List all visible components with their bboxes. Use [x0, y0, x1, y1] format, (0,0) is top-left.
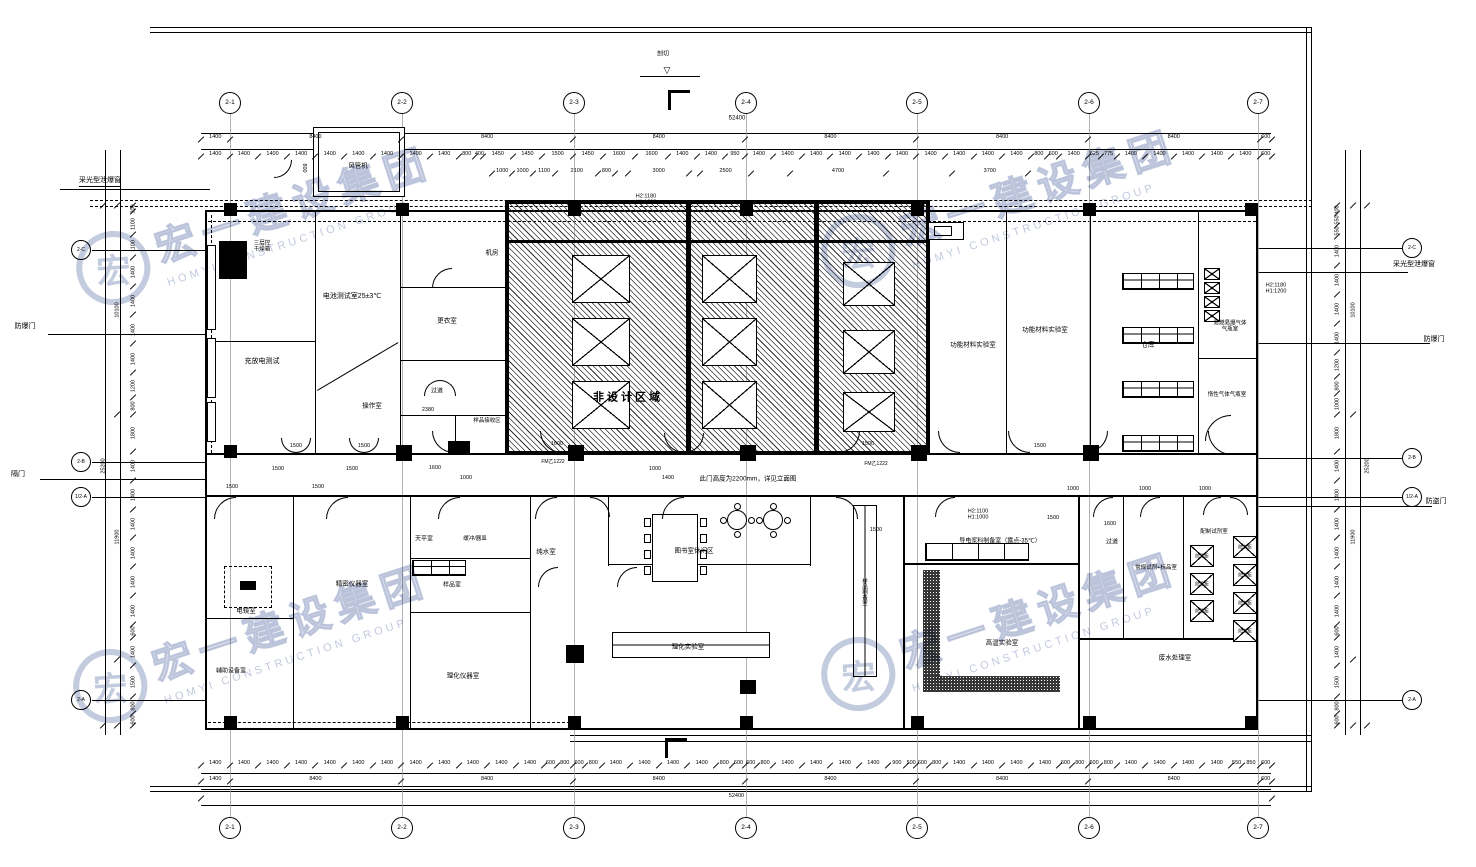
round-table	[727, 510, 747, 530]
partition-wall	[1090, 211, 1091, 453]
dim-value: 1400	[131, 324, 137, 336]
annotation: 2380	[422, 407, 434, 413]
dim-segment: 10100	[1348, 206, 1359, 415]
annotation: H2:1180 H1:1200	[1266, 283, 1287, 296]
room-label: 纯水室	[536, 548, 556, 555]
dim-segment: 8400	[230, 134, 402, 145]
room-label: 过道	[431, 389, 443, 396]
dim-value: 11900	[1351, 530, 1357, 545]
dim-text: 1000	[1139, 486, 1151, 492]
dim-value: 11900	[115, 530, 121, 545]
dim-value: 1400	[373, 761, 402, 767]
dim-value: 8400	[1088, 135, 1260, 141]
partition-wall	[903, 497, 905, 728]
door-swing	[1093, 497, 1113, 517]
dim-segment: 4700	[790, 168, 886, 179]
annotation: FM乙1222	[864, 462, 887, 468]
dim-segment: 1400	[1202, 151, 1231, 162]
column	[911, 716, 924, 729]
annotation: 剖切	[657, 52, 669, 59]
partition-wall	[903, 563, 1080, 565]
partition-wall	[1198, 211, 1199, 453]
dim-segment: 1400	[1332, 481, 1343, 510]
dim-segment: 1400	[258, 151, 287, 162]
line	[150, 32, 1312, 33]
equipment-xbox	[1204, 296, 1220, 308]
watermark-text: 宏一建设集团HOMYI CONSTRUCTION GROUP	[144, 548, 440, 706]
dim-segment: 1400	[773, 151, 802, 162]
dim-value: 8400	[230, 135, 402, 141]
dim-value: 1400	[131, 518, 137, 530]
partition-wall	[608, 564, 811, 565]
dim-segment: 1400	[802, 760, 831, 771]
dim-value: 1400	[668, 152, 697, 158]
partition-wall	[1078, 497, 1080, 728]
dim-value: 1400	[1031, 761, 1060, 767]
dim-segment: 800	[1100, 760, 1116, 771]
dim-value: 1800	[131, 427, 137, 439]
dim-text: 1500	[862, 441, 874, 447]
dim-value: 1400	[131, 646, 137, 658]
axis-bubble: 2-A	[1402, 690, 1422, 710]
dim-value: 1400	[1145, 761, 1174, 767]
dim-value: 1400	[697, 152, 726, 158]
dim-value: 1400	[1202, 152, 1231, 158]
dim-value: 1450	[573, 152, 603, 158]
dim-value: 800	[1100, 761, 1116, 767]
axis-bubble: 2-6	[1078, 817, 1100, 839]
line	[201, 773, 1271, 774]
dim-segment: 11900	[1348, 415, 1359, 661]
shelf-grid	[1122, 381, 1194, 398]
dim-value: 1400	[773, 152, 802, 158]
door-swing	[1008, 431, 1030, 453]
dim-value: 1400	[1335, 245, 1341, 257]
partition-wall	[400, 360, 505, 361]
shelf-grid	[1122, 435, 1194, 452]
door-swing	[590, 497, 610, 517]
dim-segment: 1000	[512, 168, 532, 179]
column	[911, 203, 924, 216]
dim-value: 1400	[430, 152, 459, 158]
dim-segment: 1400	[230, 151, 259, 162]
dim-value: 1400	[1117, 761, 1146, 767]
dim-value: 1400	[201, 135, 230, 141]
column	[1083, 716, 1096, 729]
axis-bubble: 2-4	[735, 92, 757, 114]
furniture-outline	[700, 518, 707, 527]
equipment-xbox	[1204, 282, 1220, 294]
dim-text: 1500	[290, 443, 302, 449]
furniture-outline	[700, 566, 707, 575]
room-label: 操作室	[362, 402, 382, 409]
column	[568, 716, 581, 729]
dim-segment: 800	[585, 760, 601, 771]
dim-segment: 1400	[974, 760, 1003, 771]
dim-segment: 1400	[830, 760, 859, 771]
shelf-grid	[925, 543, 1029, 561]
room-label: 易燃易爆气体 气瓶室	[1213, 321, 1246, 334]
equipment-xbox	[572, 318, 630, 366]
axis-bubble: 1/2-A	[1402, 487, 1422, 507]
dim-segment: 1400	[859, 151, 888, 162]
insulated-wall-band	[923, 676, 1060, 692]
round-table	[770, 531, 777, 538]
line	[1258, 458, 1402, 459]
grid-line	[230, 113, 231, 817]
dim-segment: 1400	[459, 760, 488, 771]
dim-value: 850	[1242, 761, 1259, 767]
dim-value: 1400	[401, 152, 430, 158]
room-label: 精密仪器室	[336, 580, 369, 587]
hatch-wall	[509, 240, 926, 243]
dim-text: 1600	[551, 441, 563, 447]
dim-segment: 1400	[201, 760, 230, 771]
partition-wall	[400, 287, 505, 288]
dim-tick	[114, 202, 120, 208]
dim-segment: 3000	[628, 168, 689, 179]
dim-tick	[1364, 202, 1370, 208]
dim-text: 1600	[429, 465, 441, 471]
room-label: 过道	[1106, 540, 1118, 547]
column	[224, 716, 237, 729]
dim-value: 1400	[974, 152, 1003, 158]
dim-value: 1400	[1335, 274, 1341, 286]
dim-value: 1400	[859, 152, 888, 158]
dim-text: 1500	[226, 484, 238, 490]
dim-value: 1400	[602, 761, 631, 767]
dim-segment: 1400	[230, 760, 259, 771]
dim-segment: 1400	[430, 760, 459, 771]
dim-segment: 1400	[315, 760, 344, 771]
equipment-xbox	[843, 330, 895, 374]
dim-value: 1400	[745, 152, 774, 158]
dim-value: 2500	[700, 169, 751, 175]
dim-segment	[1348, 660, 1359, 726]
dim-segment: 1400	[487, 760, 516, 771]
dim-segment: 1400	[1332, 324, 1343, 353]
room-label: 非设计区域	[593, 392, 663, 405]
annotation: ▽	[664, 65, 671, 75]
column	[568, 445, 584, 461]
dim-text: 800	[301, 163, 307, 172]
column	[911, 445, 927, 461]
axis-bubble: 2-4	[735, 817, 757, 839]
room-label: 理化仪器室	[447, 672, 480, 679]
dim-value: 8400	[401, 777, 573, 783]
line	[1258, 343, 1430, 344]
axis-bubble: 2-2	[391, 92, 413, 114]
dim-value: 1800	[1335, 427, 1341, 439]
dim-value: 1400	[230, 761, 259, 767]
line	[570, 735, 1311, 736]
dim-segment: 1450	[513, 151, 543, 162]
dim-value: 1400	[131, 353, 137, 365]
dim-value: 1400	[630, 761, 659, 767]
grid-line	[402, 113, 403, 817]
line	[201, 789, 1271, 790]
dim-segment: 1400	[1174, 151, 1203, 162]
dim-segment: 775	[1101, 151, 1117, 162]
dim-value: 1000	[1335, 398, 1341, 410]
door-swing	[617, 567, 637, 587]
dim-segment: 1400	[201, 134, 230, 145]
dim-value: 1400	[916, 152, 945, 158]
dim-segment: 1400	[602, 760, 631, 771]
column	[396, 203, 409, 216]
partition-wall	[1198, 358, 1256, 359]
room-label: 电池测试室25±3℃	[323, 293, 381, 301]
partition-wall	[315, 211, 316, 453]
dim-segment: 8400	[1088, 776, 1260, 787]
dim-value: 10100	[1351, 303, 1357, 318]
dim-segment: 1800	[128, 415, 139, 452]
dim-segment: 3700	[952, 168, 1028, 179]
room-label: 防潮柜	[1238, 572, 1252, 577]
dim-segment: 1400	[401, 760, 430, 771]
dim-value: 10100	[115, 303, 121, 318]
partition-wall	[410, 558, 530, 559]
room-label: 防爆柜	[1195, 553, 1209, 558]
dim-segment: 1400	[773, 760, 802, 771]
dim-segment: 1400	[1031, 760, 1060, 771]
partition-wall	[1080, 638, 1256, 640]
axis-bubble: 2-1	[219, 817, 241, 839]
door-swing	[1230, 497, 1248, 515]
room-label: 充放电测试	[245, 358, 280, 366]
door-swing	[438, 497, 460, 519]
line	[1345, 150, 1346, 735]
dim-value: 1400	[201, 777, 230, 783]
annotation: 52400	[729, 116, 746, 123]
dim-value: 8400	[745, 135, 917, 141]
dim-value: 1400	[131, 576, 137, 588]
dim-segment: 1400	[888, 151, 917, 162]
round-table	[720, 517, 727, 524]
dim-value: 1400	[230, 152, 259, 158]
dim-segment: 2100	[555, 168, 598, 179]
dim-segment: 1400	[201, 776, 230, 787]
dim-segment: 8400	[230, 776, 402, 787]
room-label: 高温实验室	[986, 639, 1019, 646]
partition-wall	[205, 341, 315, 342]
axis-bubble: 2-2	[391, 817, 413, 839]
round-table	[784, 517, 791, 524]
dim-segment	[112, 660, 123, 726]
axis-bubble: 2-7	[1247, 817, 1269, 839]
annotation: 防爆门	[1424, 336, 1445, 344]
partition-wall	[293, 497, 294, 728]
annotation: H2:1180 H1:1200	[636, 194, 657, 207]
grid-line	[1258, 113, 1259, 817]
dim-segment: 1450	[573, 151, 603, 162]
dim-value: 950	[725, 152, 744, 158]
dim-segment: 1400	[687, 760, 716, 771]
dim-segment: 1400	[630, 760, 659, 771]
axis-bubble: 2-C	[1402, 238, 1422, 258]
dim-value: 1400	[1202, 761, 1231, 767]
dim-segment: 1400	[1145, 151, 1174, 162]
dim-value: 1400	[945, 761, 974, 767]
door-swing	[1140, 497, 1160, 517]
dim-value: 1100	[131, 240, 137, 252]
door-swing	[1205, 415, 1231, 441]
dim-value: 800	[1335, 701, 1341, 710]
partition-wall	[410, 612, 530, 613]
equipment-xbox	[1204, 268, 1220, 280]
dim-value: 1400	[131, 295, 137, 307]
dim-text: 1500	[870, 527, 882, 533]
dim-segment: 8400	[916, 776, 1088, 787]
dim-segment: 52400	[201, 793, 1272, 804]
door-swing	[538, 567, 558, 587]
dim-segment: 1100	[128, 235, 139, 258]
dim-value: 1400	[830, 152, 859, 158]
dim-value: 25200	[1365, 459, 1371, 474]
round-table	[770, 503, 777, 510]
annotation: FM乙1222	[541, 460, 564, 466]
room-label: 防潮柜	[1238, 628, 1252, 633]
room-label: 防爆柜	[1195, 581, 1209, 586]
column	[224, 445, 237, 458]
line	[48, 334, 205, 335]
dim-value: 1400	[459, 761, 488, 767]
dim-tick	[1350, 202, 1356, 208]
dim-value: 1400	[830, 761, 859, 767]
dim-value: 1400	[1335, 303, 1341, 315]
dim-segment: 8400	[745, 776, 917, 787]
dim-value: 1400	[1335, 576, 1341, 588]
door-swing	[326, 497, 348, 519]
dim-value: 1400	[287, 152, 316, 158]
dim-value: 1500	[1335, 676, 1341, 688]
room-label: 天平室	[415, 537, 433, 544]
dim-value: 1400	[516, 761, 545, 767]
dim-value: 1400	[1335, 489, 1341, 501]
annotation: 防盗门	[1426, 498, 1447, 506]
dim-text: 1500	[346, 466, 358, 472]
dim-value: 1100	[533, 169, 555, 175]
column	[1245, 716, 1258, 729]
dim-value: 1400	[1002, 152, 1031, 158]
dim-segment: 8400	[573, 134, 745, 145]
room-label: 样品制备室	[860, 578, 868, 606]
dim-value: 1400	[131, 460, 137, 472]
room-label: 风管机	[348, 162, 368, 169]
dim-segment: 1400	[287, 760, 316, 771]
room-label: 废水处理室	[1159, 654, 1192, 661]
dim-segment: 1400	[128, 538, 139, 567]
dim-segment: 1400	[516, 760, 545, 771]
dim-segment: 1400	[745, 151, 774, 162]
dim-segment: 8400	[401, 134, 573, 145]
dim-value: 1400	[687, 761, 716, 767]
room-label: 仓库	[1142, 341, 1155, 348]
dim-value: 1600	[603, 152, 636, 158]
dim-value: 1400	[888, 152, 917, 158]
dim-value: 8400	[230, 777, 402, 783]
dim-value: 1400	[344, 761, 373, 767]
dim-segment: 1500	[542, 151, 573, 162]
dim-value: 1400	[1174, 761, 1203, 767]
door-swing	[1086, 431, 1108, 453]
dim-segment: 1400	[1332, 295, 1343, 324]
dim-segment: 1400	[373, 151, 402, 162]
solid-block	[566, 645, 584, 663]
partition-wall	[400, 211, 401, 453]
dim-segment: 8400	[401, 776, 573, 787]
dim-value: 1400	[802, 761, 831, 767]
furniture-outline	[207, 245, 216, 330]
furniture-outline	[700, 534, 707, 543]
dim-segment: 1400	[258, 760, 287, 771]
axis-bubble: 2-3	[563, 92, 585, 114]
dim-segment: 8400	[1088, 134, 1260, 145]
dim-segment: 1400	[974, 151, 1003, 162]
dim-segment: 1400	[1332, 510, 1343, 539]
dim-segment: 1400	[1059, 151, 1088, 162]
dim-value: 1400	[287, 761, 316, 767]
solid-block	[740, 680, 756, 694]
dim-segment: 1400	[1117, 151, 1146, 162]
dim-segment: 1600	[603, 151, 636, 162]
dim-value: 800	[131, 402, 137, 411]
room-label: 三层控 干燥箱	[254, 241, 271, 254]
dim-value: 1400	[201, 152, 230, 158]
room-label: 导电浆料制备室（露点-35℃）	[959, 539, 1040, 546]
dim-value: 1100	[131, 218, 137, 230]
diagonal-wall	[317, 342, 398, 391]
round-table	[756, 517, 763, 524]
dim-segment: 1400	[697, 151, 726, 162]
dim-value: 1400	[373, 152, 402, 158]
dim-segment: 1400	[916, 151, 945, 162]
room-label: 缓冲/器皿	[463, 536, 487, 542]
partition-wall	[1006, 211, 1007, 453]
column	[568, 203, 581, 216]
dim-segment: 1400	[1332, 596, 1343, 625]
annotation: 此门高度为2200mm，详见立面图	[700, 475, 797, 482]
dim-value: 1400	[315, 152, 344, 158]
dim-segment: 1400	[1332, 638, 1343, 667]
dim-value: 52400	[201, 794, 1272, 800]
dim-segment: 1400	[128, 596, 139, 625]
room-label: 样品室	[443, 583, 461, 590]
dim-value: 800	[131, 701, 137, 710]
partition-wall	[810, 497, 811, 566]
dim-value: 1000	[512, 169, 532, 175]
dim-tick	[100, 202, 106, 208]
room-label: 惰性气体气瓶室	[1208, 392, 1247, 398]
dim-value: 1400	[1174, 152, 1203, 158]
room-label: 功能材料实验室	[1022, 326, 1068, 333]
axis-bubble: 2-5	[906, 817, 928, 839]
room-label: 配制试剂室	[1200, 529, 1228, 535]
axis-bubble: 2-5	[906, 92, 928, 114]
furniture-outline	[644, 534, 651, 543]
partition-wall	[205, 618, 293, 619]
equipment-xbox	[843, 392, 895, 432]
room-label: 防爆柜	[1195, 608, 1209, 613]
room-label: 图书室休闲区	[675, 547, 714, 554]
door-swing	[432, 268, 452, 288]
dim-segment: 1400	[1202, 760, 1231, 771]
partition-wall	[530, 497, 531, 728]
line	[1306, 27, 1307, 792]
dim-segment: 1450	[483, 151, 513, 162]
dim-segment: 1400	[1002, 151, 1031, 162]
dim-value: 3700	[952, 169, 1028, 175]
